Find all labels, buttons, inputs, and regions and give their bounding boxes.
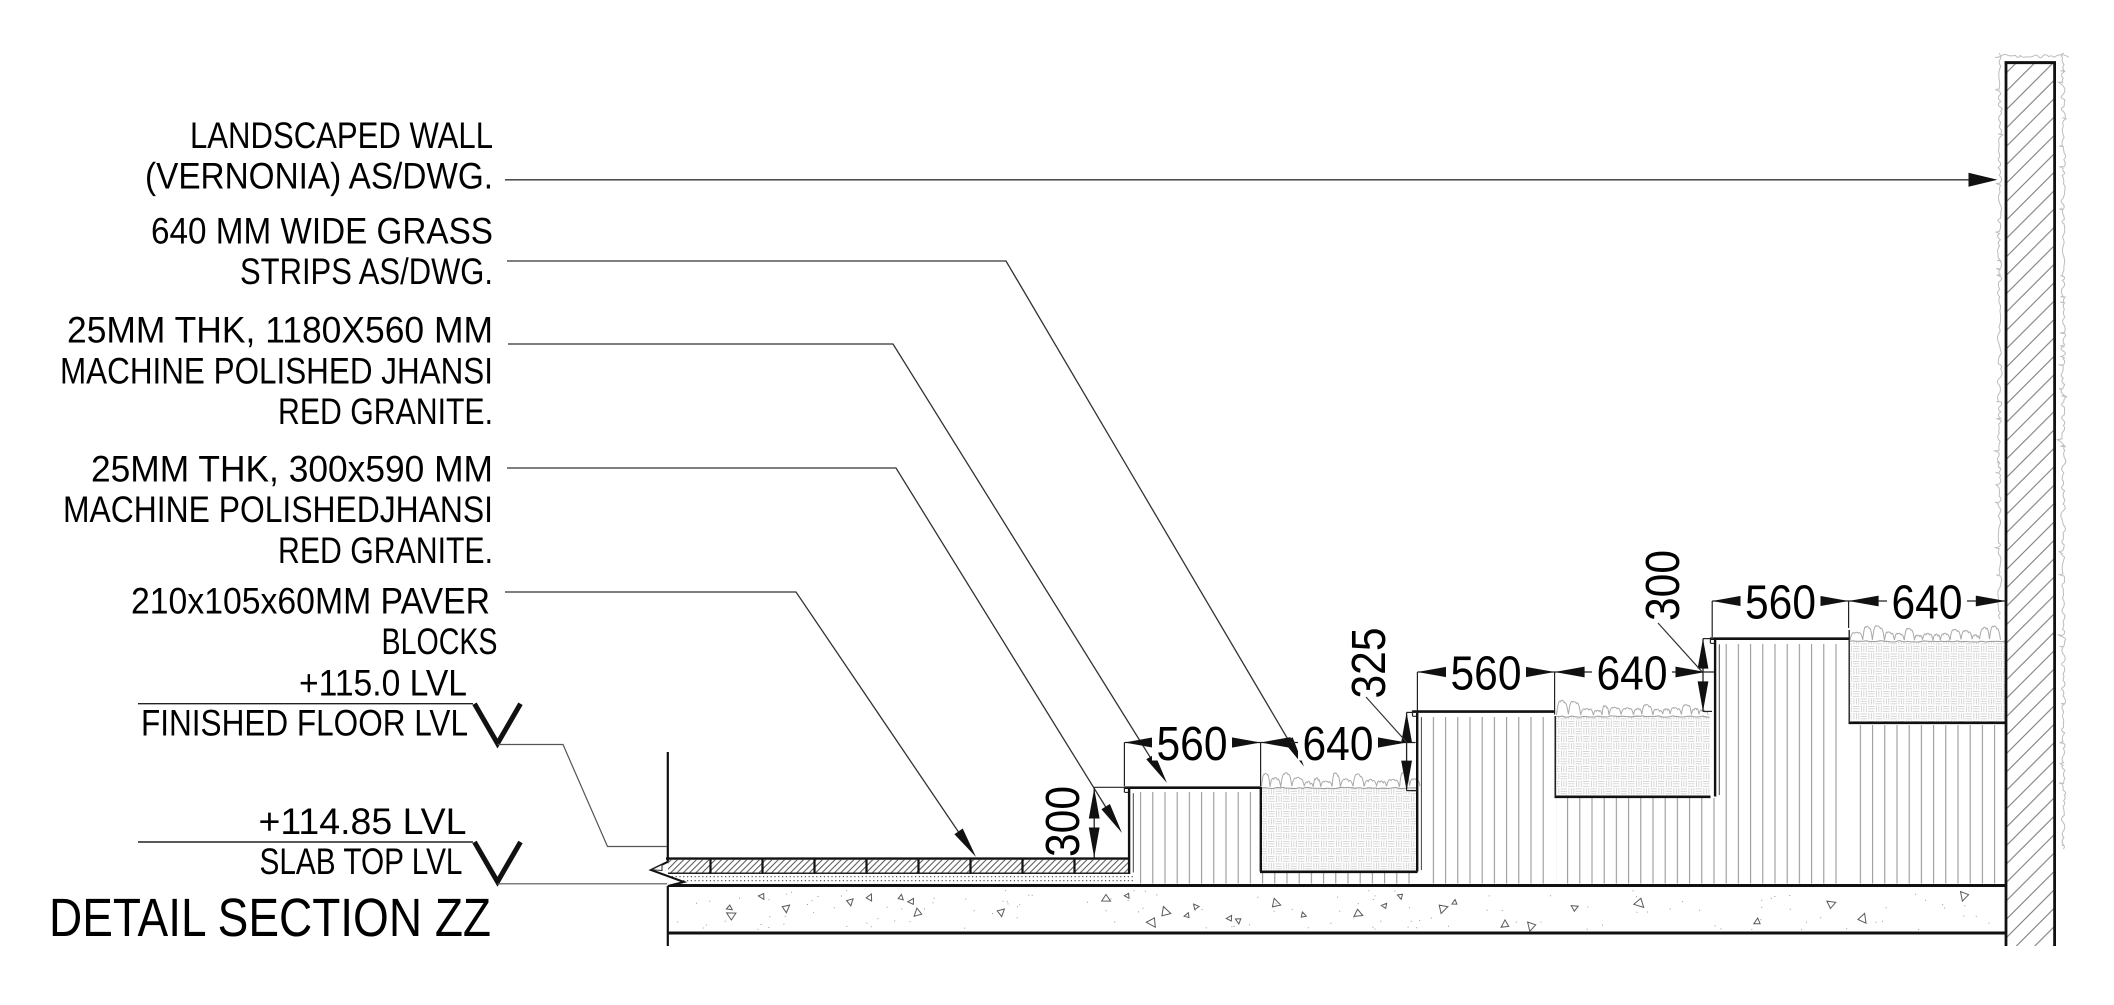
svg-text:RED GRANITE.: RED GRANITE.: [278, 391, 493, 432]
svg-text:LANDSCAPED WALL: LANDSCAPED WALL: [190, 115, 493, 156]
svg-text:MACHINE POLISHED JHANSI: MACHINE POLISHED JHANSI: [60, 350, 493, 391]
svg-text:+114.85 LVL: +114.85 LVL: [259, 801, 467, 842]
svg-text:640: 640: [1892, 576, 1963, 629]
svg-text:640: 640: [1597, 647, 1668, 700]
svg-text:300: 300: [1037, 786, 1090, 857]
svg-text:(VERNONIA) AS/DWG.: (VERNONIA) AS/DWG.: [145, 156, 493, 197]
svg-text:25MM THK, 1180X560 MM: 25MM THK, 1180X560 MM: [67, 310, 493, 351]
svg-text:25MM THK, 300x590 MM: 25MM THK, 300x590 MM: [91, 449, 493, 490]
svg-text:RED GRANITE.: RED GRANITE.: [278, 530, 493, 571]
svg-text:+115.0 LVL: +115.0 LVL: [299, 663, 467, 704]
svg-text:BLOCKS: BLOCKS: [382, 621, 498, 662]
svg-text:210x105x60MM PAVER: 210x105x60MM PAVER: [131, 581, 490, 622]
svg-text:560: 560: [1745, 576, 1816, 629]
svg-text:300: 300: [1637, 550, 1690, 621]
svg-text:FINISHED FLOOR LVL: FINISHED FLOOR LVL: [141, 702, 468, 743]
svg-text:560: 560: [1157, 718, 1228, 771]
svg-text:560: 560: [1451, 647, 1522, 700]
svg-text:MACHINE POLISHEDJHANSI: MACHINE POLISHEDJHANSI: [63, 489, 493, 530]
svg-text:325: 325: [1343, 628, 1396, 699]
svg-text:STRIPS AS/DWG.: STRIPS AS/DWG.: [240, 251, 493, 292]
svg-text:640: 640: [1303, 718, 1374, 771]
svg-text:640 MM WIDE GRASS: 640 MM WIDE GRASS: [151, 211, 493, 252]
svg-text:DETAIL SECTION ZZ: DETAIL SECTION ZZ: [49, 888, 491, 948]
svg-text:SLAB TOP LVL: SLAB TOP LVL: [260, 841, 463, 882]
